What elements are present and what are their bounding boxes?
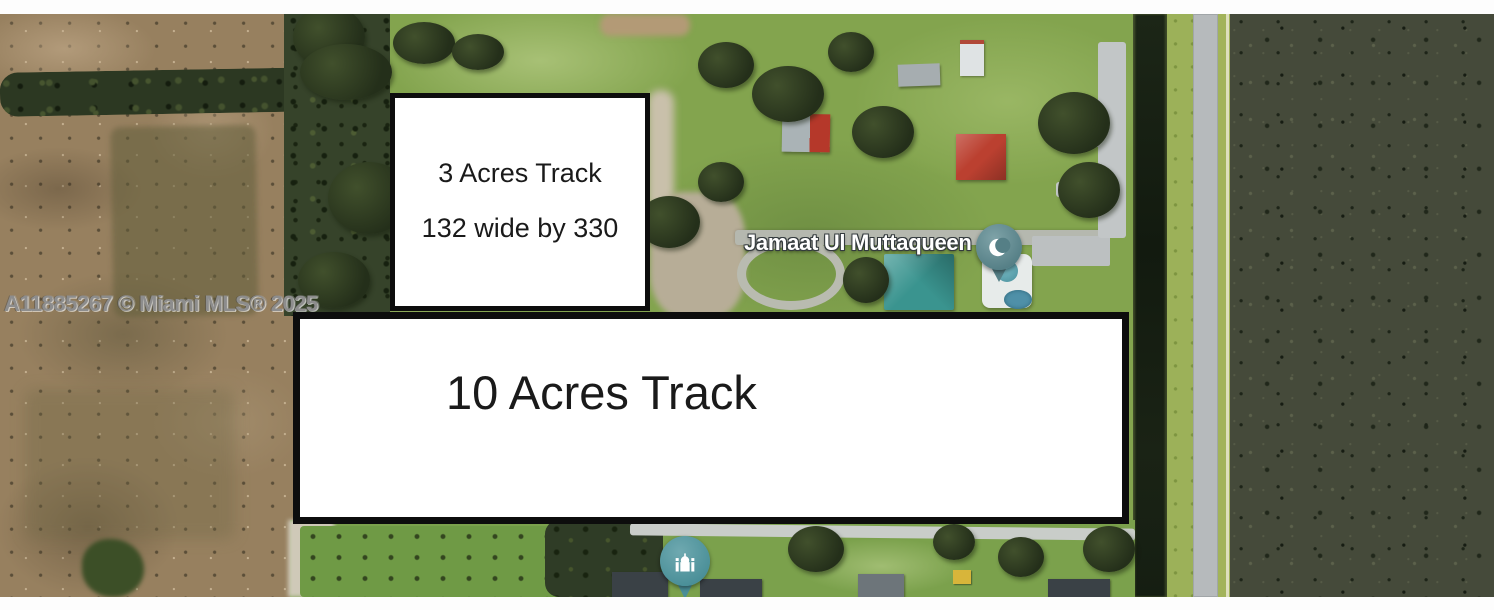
pin-head [976, 224, 1022, 270]
tree-canopy [452, 34, 504, 70]
shed-building [898, 63, 941, 86]
tract-dimensions: 132 wide by 330 [395, 213, 645, 243]
tree-canopy [852, 106, 914, 158]
place-label: Jamaat Ul Muttaqueen [744, 230, 972, 256]
tree-canopy [1083, 526, 1135, 572]
orchard [300, 526, 562, 597]
aerial-photo: Jamaat Ul Muttaqueen [0, 14, 1494, 597]
tree-canopy [828, 32, 874, 72]
mosque-location-pin [976, 224, 1022, 282]
soil-patch [25, 389, 235, 539]
grass-verge [1167, 14, 1193, 597]
fence-line [1226, 14, 1229, 597]
red-roof-house [956, 134, 1006, 180]
mls-watermark: A11885267 © Miami MLS® 2025 [4, 291, 318, 317]
forest [1230, 14, 1494, 597]
soil-patch [110, 125, 258, 318]
canal [1133, 14, 1167, 597]
tree-canopy [1058, 162, 1120, 218]
tree-canopy [843, 257, 889, 303]
house-roof [1048, 579, 1110, 597]
tract-title: 10 Acres Track [446, 367, 757, 419]
pool [1004, 290, 1032, 309]
tree-canopy [698, 162, 744, 202]
pin-head [660, 536, 710, 586]
tree-canopy [393, 22, 455, 64]
teal-roof-building [884, 254, 954, 310]
road [1193, 14, 1218, 597]
three-acre-tract-box: 3 Acres Track 132 wide by 330 [390, 93, 650, 311]
parking-lot [1032, 236, 1110, 266]
place-of-worship-pin [660, 536, 710, 597]
rv-vehicle [960, 40, 984, 76]
listing-photo: Jamaat Ul Muttaqueen [0, 0, 1494, 610]
tree-canopy [752, 66, 824, 122]
crescent-moon-icon [986, 234, 1012, 260]
tree-canopy [300, 44, 392, 100]
house-roof [858, 574, 904, 597]
tract-title: 3 Acres Track [395, 158, 645, 188]
dirt-patch [600, 14, 690, 36]
tree-canopy [698, 42, 754, 88]
tree-canopy [788, 526, 844, 572]
tree-canopy [998, 537, 1044, 577]
mosque-building-icon [671, 547, 699, 575]
shrub-patch [82, 539, 144, 597]
bottom-white-strip [0, 597, 1494, 610]
tree-canopy [933, 524, 975, 560]
tree-canopy [1038, 92, 1110, 154]
top-white-strip [0, 0, 1494, 14]
dirt-patch [648, 90, 674, 210]
ten-acre-tract-box: 10 Acres Track [293, 312, 1129, 524]
tree-line [0, 67, 322, 117]
shed-building [953, 570, 971, 584]
